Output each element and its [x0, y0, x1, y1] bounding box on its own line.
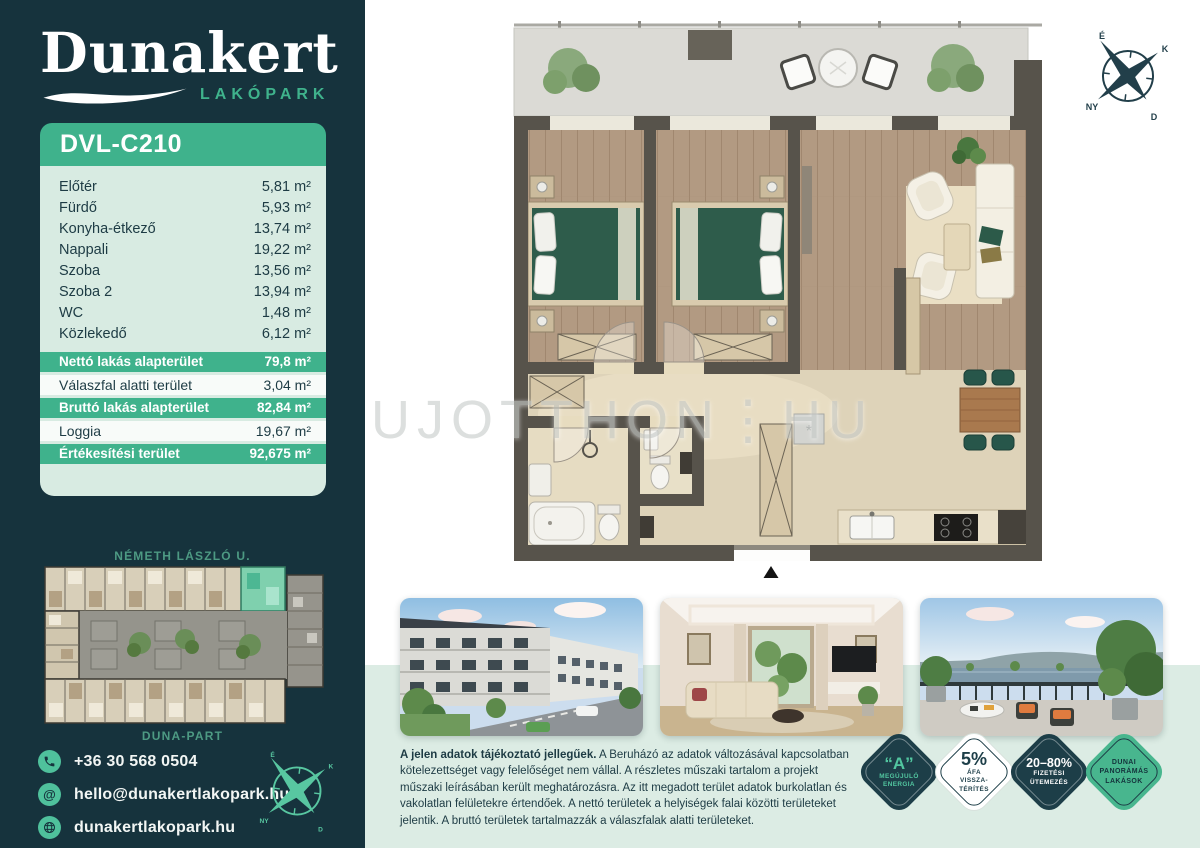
- room-label: Szoba: [59, 261, 100, 282]
- siteplan-courtyard: [79, 611, 287, 679]
- svg-text:NY: NY: [1086, 102, 1099, 112]
- total-label: Nettó lakás alapterület: [59, 352, 203, 372]
- room-label: Szoba 2: [59, 282, 112, 303]
- svg-text:É: É: [1099, 31, 1105, 41]
- svg-text:É: É: [270, 750, 275, 759]
- total-label: Értékesítési terület: [59, 444, 180, 464]
- total-value: 3,04 m²: [264, 375, 311, 395]
- total-row: Bruttó lakás alapterület 82,84 m²: [40, 398, 326, 418]
- room-area-value: 13,56 m²: [254, 261, 311, 282]
- disclaimer-text: A jelen adatok tájékoztató jellegűek. A …: [400, 747, 852, 829]
- room-area-value: 13,94 m²: [254, 282, 311, 303]
- tv-console: [802, 166, 812, 254]
- room-row: Előtér 5,81 m²: [59, 177, 311, 198]
- room-area-value: 5,93 m²: [262, 198, 311, 219]
- badge-payment-schedule: 20–80% FIZETÉSIÜTEMEZÉS: [1005, 728, 1093, 816]
- bedroom2-wardrobe: [694, 334, 772, 360]
- compass-rose-sidebar-icon: É K NY D: [250, 744, 344, 838]
- brand-name: Dunakert: [40, 24, 326, 82]
- room-area-value: 5,81 m²: [262, 177, 311, 198]
- photo-living-room-interior: [660, 598, 903, 736]
- total-row: Értékesítési terület 92,675 m²: [40, 444, 326, 464]
- room-area-value: 13,74 m²: [254, 219, 311, 240]
- room-label: Nappali: [59, 240, 108, 261]
- room-row: Fürdő 5,93 m²: [59, 198, 311, 219]
- svg-text:K: K: [328, 763, 333, 770]
- room-list: Előtér 5,81 m² Fürdő 5,93 m² Konyha-étke…: [40, 166, 326, 349]
- fridge: [998, 510, 1026, 544]
- room-area-value: 1,48 m²: [262, 303, 311, 324]
- room-row: WC 1,48 m²: [59, 303, 311, 324]
- total-row: Válaszfal alatti terület 3,04 m²: [40, 375, 326, 395]
- entrance-arrow-icon: [756, 566, 786, 578]
- bathroom-toilet: [599, 514, 619, 540]
- total-label: Bruttó lakás alapterület: [59, 398, 209, 418]
- total-value: 92,675 m²: [249, 444, 311, 464]
- badge-energy-rating: “A”: [884, 755, 913, 773]
- room-row: Konyha-étkező 13,74 m²: [59, 219, 311, 240]
- total-row: Loggia 19,67 m²: [40, 421, 326, 441]
- coffee-table: [944, 224, 970, 270]
- doormat: [688, 30, 732, 60]
- svg-text:K: K: [1162, 44, 1169, 54]
- tv: [832, 646, 876, 672]
- badge-renewable-energy: “A” MEGÚJULÓENERGIA: [855, 728, 943, 816]
- room-row: Szoba 2 13,94 m²: [59, 282, 311, 303]
- street-label-top: NÉMETH LÁSZLÓ U.: [0, 549, 365, 563]
- badge-panorama-apartments: DUNAIPANORÁMÁSLAKÁSOK: [1080, 728, 1168, 816]
- unit-code-header: DVL-C210: [40, 123, 326, 166]
- total-row: Nettó lakás alapterület 79,8 m²: [40, 352, 326, 372]
- floorplan-rendering[interactable]: *: [498, 16, 1058, 578]
- total-label: Válaszfal alatti terület: [59, 375, 192, 395]
- main-area: *: [365, 0, 1200, 848]
- badge-vat-refund: 5% ÁFAVISSZA-TÉRÍTÉS: [930, 728, 1018, 816]
- stove: [934, 514, 978, 541]
- room-row: Nappali 19,22 m²: [59, 240, 311, 261]
- siteplan-bottom-row: [45, 679, 285, 723]
- brand-subtitle: LAKÓPARK: [200, 86, 329, 104]
- photo-exterior-street-view: [400, 598, 643, 736]
- totals-list: Nettó lakás alapterület 79,8 m² Válaszfa…: [40, 352, 326, 464]
- total-value: 79,8 m²: [264, 352, 311, 372]
- total-value: 19,67 m²: [256, 421, 311, 441]
- room-row: Szoba 13,56 m²: [59, 261, 311, 282]
- total-label: Loggia: [59, 421, 101, 441]
- siteplan-map[interactable]: [35, 565, 331, 725]
- badge-vat-value: 5%: [961, 750, 987, 769]
- compass-rose-icon: É K NY D: [1078, 26, 1178, 126]
- svg-text:D: D: [318, 826, 323, 833]
- disclaimer-lead: A jelen adatok tájékoztató jellegűek.: [400, 749, 596, 761]
- wc-toilet: [651, 465, 669, 489]
- website-url: dunakertlakopark.hu: [74, 819, 235, 837]
- badge-payment-value: 20–80%: [1026, 757, 1072, 770]
- photo-strip: [400, 598, 1163, 736]
- street-label-bottom: DUNA-PART: [0, 729, 365, 743]
- siteplan-right-wing: [287, 575, 323, 687]
- brand-logo: Dunakert LAKÓPARK: [40, 24, 326, 106]
- bathroom-basin: [529, 464, 551, 496]
- total-value: 82,84 m²: [257, 398, 311, 418]
- phone-number: +36 30 568 0504: [74, 753, 198, 771]
- at-icon: @: [38, 783, 61, 806]
- room-area-value: 19,22 m²: [254, 240, 311, 261]
- flyer-page: Dunakert LAKÓPARK DVL-C210 Előtér 5,81 m…: [0, 0, 1200, 848]
- globe-icon: [38, 816, 61, 839]
- area-panel: Előtér 5,81 m² Fürdő 5,93 m² Konyha-étke…: [40, 166, 326, 496]
- phone-icon: [38, 750, 61, 773]
- sidebar: Dunakert LAKÓPARK DVL-C210 Előtér 5,81 m…: [0, 0, 365, 848]
- room-row: Közlekedő 6,12 m²: [59, 324, 311, 345]
- room-area-value: 6,12 m²: [262, 324, 311, 345]
- svg-text:*: *: [806, 423, 812, 440]
- room-label: Előtér: [59, 177, 97, 198]
- room-label: Fürdő: [59, 198, 97, 219]
- entrance: [734, 545, 810, 578]
- photo-danube-panorama-terrace: [920, 598, 1163, 736]
- svg-text:NY: NY: [260, 818, 270, 825]
- svg-text:D: D: [1151, 112, 1158, 122]
- siteplan-left-wing: [45, 611, 79, 679]
- wave-swoosh-icon: [40, 84, 190, 106]
- room-label: Közlekedő: [59, 324, 127, 345]
- loggia-terrace: [514, 21, 1042, 116]
- siteplan-top-row: [45, 567, 285, 611]
- room-label: Konyha-étkező: [59, 219, 156, 240]
- room-label: WC: [59, 303, 83, 324]
